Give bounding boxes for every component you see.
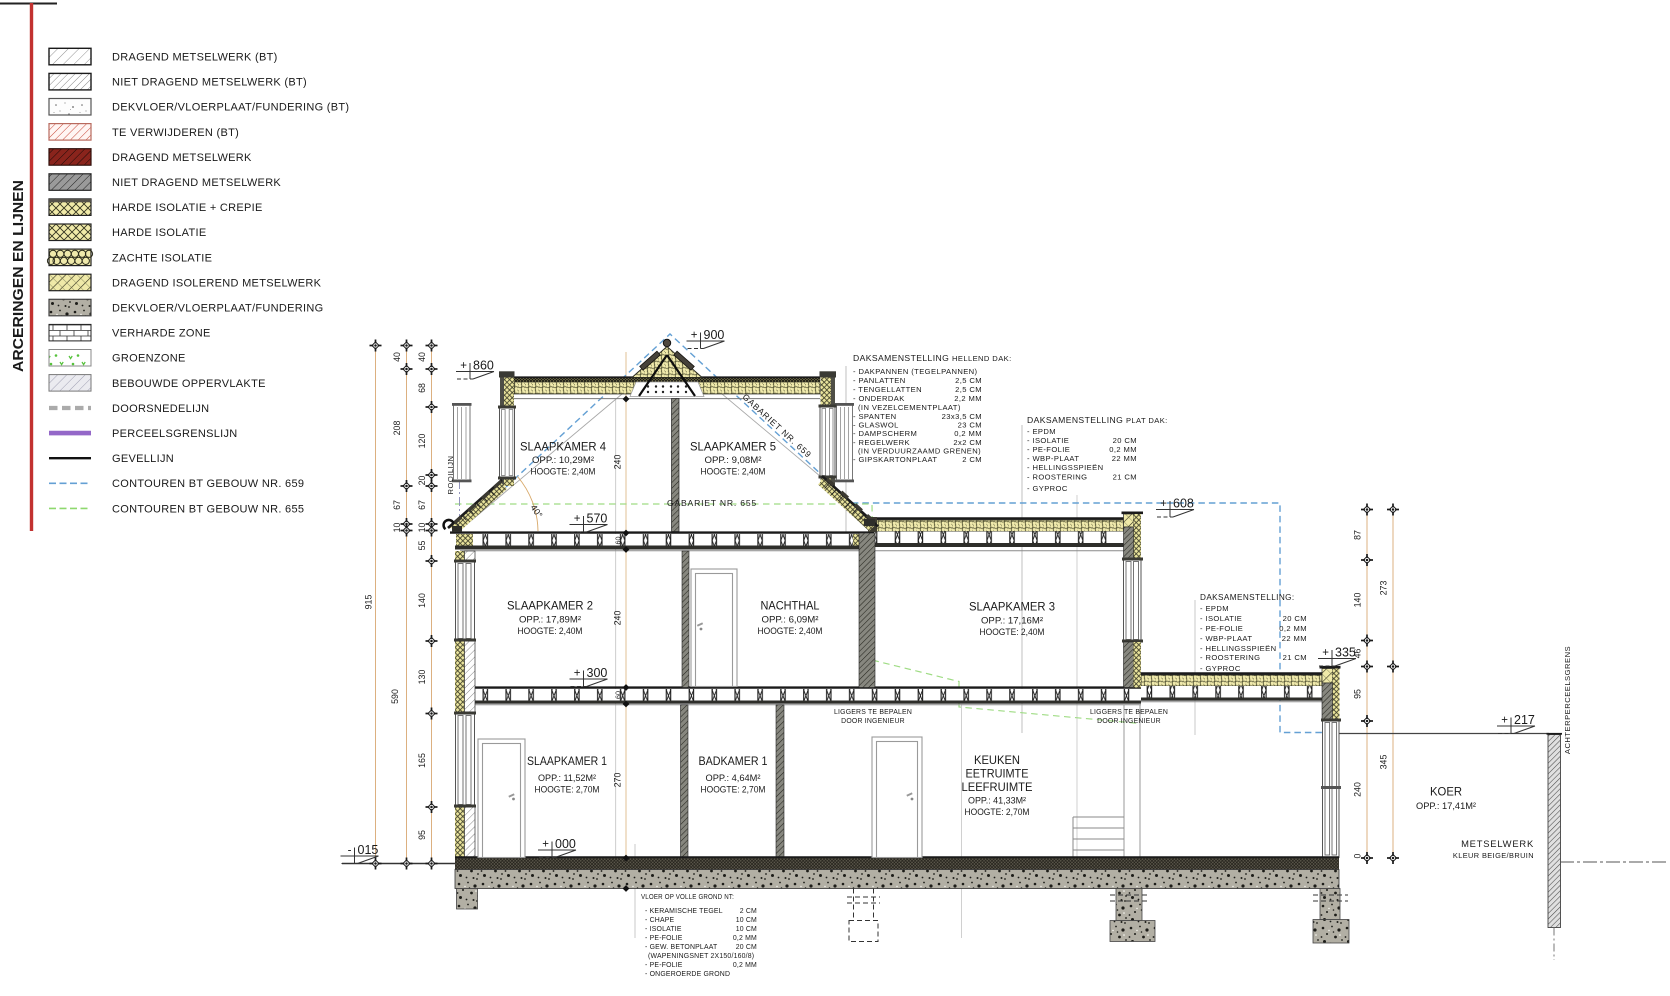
svg-text:GABARIET NR. 655: GABARIET NR. 655 <box>667 498 757 508</box>
svg-text:HOOGTE: 2,40M: HOOGTE: 2,40M <box>531 466 596 477</box>
svg-text:(IN VEZELCEMENTPLAAT): (IN VEZELCEMENTPLAAT) <box>858 403 961 412</box>
svg-text:570: 570 <box>587 512 608 526</box>
svg-text:SLAAPKAMER 4: SLAAPKAMER 4 <box>520 442 607 454</box>
svg-text:67: 67 <box>417 500 427 510</box>
svg-text:40: 40 <box>417 352 427 362</box>
svg-text:- GEW. BETONPLAAT: - GEW. BETONPLAAT <box>645 944 718 951</box>
svg-text:DAKSAMENSTELLING HELLEND DAK:: DAKSAMENSTELLING HELLEND DAK: <box>853 353 1012 363</box>
svg-text:DOOR INGENIEUR: DOOR INGENIEUR <box>841 718 905 725</box>
svg-text:PERCEELSGRENSLIJN: PERCEELSGRENSLIJN <box>112 428 238 440</box>
svg-text:55: 55 <box>417 541 427 551</box>
svg-text:HOOGTE: 2,70M: HOOGTE: 2,70M <box>535 784 600 795</box>
svg-text:130: 130 <box>417 670 427 685</box>
svg-text:21 CM: 21 CM <box>1113 473 1137 482</box>
svg-text:LIGGERS TE BEPALEN: LIGGERS TE BEPALEN <box>834 709 912 716</box>
svg-text:345: 345 <box>1379 755 1389 770</box>
svg-text:HOOGTE: 2,40M: HOOGTE: 2,40M <box>980 626 1045 637</box>
svg-text:DRAGEND ISOLEREND METSELWERK: DRAGEND ISOLEREND METSELWERK <box>112 277 322 289</box>
svg-text:DRAGEND METSELWERK (BT): DRAGEND METSELWERK (BT) <box>112 52 278 64</box>
svg-text:ACHTERPERCEELSGRENS: ACHTERPERCEELSGRENS <box>1563 646 1572 754</box>
svg-text:95: 95 <box>417 830 427 840</box>
svg-text:217: 217 <box>1514 713 1535 727</box>
svg-text:0,2 MM: 0,2 MM <box>1109 445 1137 454</box>
svg-text:OPP.: 41,33M²: OPP.: 41,33M² <box>968 795 1026 806</box>
svg-text:- PE-FOLIE: - PE-FOLIE <box>645 962 683 969</box>
svg-text:OPP.: 9,08M²: OPP.: 9,08M² <box>705 454 762 465</box>
svg-text:OPP.: 10,29M²: OPP.: 10,29M² <box>532 454 594 465</box>
svg-text:+: + <box>542 839 549 851</box>
svg-text:95: 95 <box>1353 689 1363 699</box>
svg-text:SLAAPKAMER 2: SLAAPKAMER 2 <box>507 601 593 613</box>
svg-text:DEKVLOER/VLOERPLAAT/FUNDERING: DEKVLOER/VLOERPLAAT/FUNDERING <box>112 303 323 315</box>
svg-text:240: 240 <box>613 611 623 626</box>
svg-text:165: 165 <box>417 753 427 768</box>
svg-text:- DAMPSCHERM: - DAMPSCHERM <box>853 429 917 438</box>
svg-text:SLAAPKAMER 1: SLAAPKAMER 1 <box>527 756 607 768</box>
svg-text:LIGGERS TE BEPALEN: LIGGERS TE BEPALEN <box>1090 709 1168 716</box>
svg-text:DEKVLOER/VLOERPLAAT/FUNDERING: DEKVLOER/VLOERPLAAT/FUNDERING (BT) <box>112 102 349 114</box>
svg-text:- WBP-PLAAT: - WBP-PLAAT <box>1200 634 1252 643</box>
svg-text:+: + <box>574 513 581 525</box>
svg-text:BEBOUWDE OPPERVLAKTE: BEBOUWDE OPPERVLAKTE <box>112 378 266 390</box>
svg-text:915: 915 <box>364 595 374 610</box>
svg-text:- HELLINGSSPIEËN: - HELLINGSSPIEËN <box>1200 644 1276 653</box>
svg-text:HOOGTE: 2,70M: HOOGTE: 2,70M <box>701 784 766 795</box>
svg-text:KOER: KOER <box>1430 787 1462 799</box>
svg-text:- PE-FOLIE: - PE-FOLIE <box>1200 624 1243 633</box>
svg-text:60: 60 <box>614 691 623 699</box>
svg-text:- PANLATTEN: - PANLATTEN <box>853 376 906 385</box>
svg-text:ARCERINGEN EN LIJNEN: ARCERINGEN EN LIJNEN <box>11 180 27 372</box>
svg-text:(WAPENINGSNET 2X150/160/8): (WAPENINGSNET 2X150/160/8) <box>648 953 754 960</box>
svg-text:TE VERWIJDEREN (BT): TE VERWIJDEREN (BT) <box>112 127 239 139</box>
svg-text:ROOILIJN: ROOILIJN <box>446 455 455 494</box>
svg-text:140: 140 <box>417 593 427 608</box>
svg-text:+: + <box>691 330 698 342</box>
svg-text:- DAKPANNEN (TEGELPANNEN): - DAKPANNEN (TEGELPANNEN) <box>853 367 978 376</box>
svg-text:OPP.: 4,64M²: OPP.: 4,64M² <box>706 772 761 783</box>
svg-text:VLOER OP VOLLE GROND NT:: VLOER OP VOLLE GROND NT: <box>641 892 734 901</box>
svg-text:- PE-FOLIE: - PE-FOLIE <box>1027 445 1070 454</box>
svg-text:ZACHTE ISOLATIE: ZACHTE ISOLATIE <box>112 252 212 264</box>
svg-text:KEUKEN: KEUKEN <box>974 755 1020 767</box>
svg-text:10: 10 <box>417 523 427 533</box>
svg-text:DAKSAMENSTELLING PLAT DAK:: DAKSAMENSTELLING PLAT DAK: <box>1027 415 1168 425</box>
svg-text:OPP.: 11,52M²: OPP.: 11,52M² <box>538 772 596 783</box>
svg-text:0,2 MM: 0,2 MM <box>954 429 982 438</box>
svg-text:DOOR INGENIEUR: DOOR INGENIEUR <box>1097 718 1161 725</box>
svg-text:10: 10 <box>392 523 402 533</box>
svg-text:- EPDM: - EPDM <box>1200 604 1229 613</box>
svg-text:22 MM: 22 MM <box>1112 454 1137 463</box>
svg-text:- EPDM: - EPDM <box>1027 427 1056 436</box>
svg-text:OPP.: 6,09M²: OPP.: 6,09M² <box>762 614 819 625</box>
svg-text:- GIPSKARTONPLAAT: - GIPSKARTONPLAAT <box>853 455 937 464</box>
svg-text:OPP.: 17,41M²: OPP.: 17,41M² <box>1416 800 1476 811</box>
svg-text:2,5 CM: 2,5 CM <box>955 376 982 385</box>
svg-text:HOOGTE: 2,40M: HOOGTE: 2,40M <box>701 466 766 477</box>
svg-text:140: 140 <box>1353 593 1363 608</box>
svg-text:208: 208 <box>392 421 402 436</box>
svg-text:OPP.: 17,16M²: OPP.: 17,16M² <box>981 615 1043 626</box>
svg-text:- GYPROC: - GYPROC <box>1027 484 1068 493</box>
svg-text:0,2 MM: 0,2 MM <box>733 935 757 942</box>
svg-text:240: 240 <box>613 455 623 470</box>
svg-text:VERHARDE ZONE: VERHARDE ZONE <box>112 328 211 340</box>
svg-text:EETRUIMTE: EETRUIMTE <box>966 769 1029 781</box>
svg-text:240: 240 <box>1353 782 1363 797</box>
svg-text:20: 20 <box>417 476 427 486</box>
svg-text:GROENZONE: GROENZONE <box>112 353 186 365</box>
svg-text:- ONGEROERDE GROND: - ONGEROERDE GROND <box>645 971 730 978</box>
svg-text:CONTOUREN BT GEBOUW NR. 659: CONTOUREN BT GEBOUW NR. 659 <box>112 478 304 490</box>
svg-text:273: 273 <box>1379 581 1389 596</box>
svg-text:DAKSAMENSTELLING:: DAKSAMENSTELLING: <box>1200 593 1295 602</box>
svg-text:- GYPROC: - GYPROC <box>1200 664 1241 673</box>
svg-text:900: 900 <box>704 328 725 342</box>
svg-text:20 CM: 20 CM <box>1283 614 1307 623</box>
svg-text:KLEUR BEIGE/BRUIN: KLEUR BEIGE/BRUIN <box>1453 851 1534 860</box>
svg-text:+: + <box>1160 498 1167 510</box>
svg-text:0,2 MM: 0,2 MM <box>1279 624 1307 633</box>
svg-text:21 CM: 21 CM <box>1283 653 1307 662</box>
svg-text:LEEFRUIMTE: LEEFRUIMTE <box>962 782 1033 794</box>
svg-text:300: 300 <box>587 666 608 680</box>
svg-text:22 MM: 22 MM <box>1282 634 1307 643</box>
svg-text:270: 270 <box>613 773 623 788</box>
svg-text:10 CM: 10 CM <box>736 917 757 924</box>
svg-text:- ONDERDAK: - ONDERDAK <box>853 394 905 403</box>
svg-text:20 CM: 20 CM <box>1113 436 1137 445</box>
svg-text:- ISOLATIE: - ISOLATIE <box>1027 436 1069 445</box>
svg-text:BADKAMER 1: BADKAMER 1 <box>699 756 768 768</box>
svg-text:68: 68 <box>417 383 427 393</box>
svg-text:120: 120 <box>417 434 427 449</box>
svg-text:METSELWERK: METSELWERK <box>1461 838 1534 849</box>
svg-text:HOOGTE: 2,70M: HOOGTE: 2,70M <box>965 806 1030 817</box>
svg-text:- PE-FOLIE: - PE-FOLIE <box>645 935 683 942</box>
svg-text:NIET DRAGEND METSELWERK (BT): NIET DRAGEND METSELWERK (BT) <box>112 77 307 89</box>
svg-text:67: 67 <box>392 500 402 510</box>
svg-text:- TENGELLATTEN: - TENGELLATTEN <box>853 385 922 394</box>
svg-text:OPP.: 17,89M²: OPP.: 17,89M² <box>519 614 581 625</box>
svg-text:- WBP-PLAAT: - WBP-PLAAT <box>1027 454 1079 463</box>
svg-text:20 CM: 20 CM <box>736 944 757 951</box>
svg-text:GEVELLIJN: GEVELLIJN <box>112 453 174 465</box>
svg-text:2,2 MM: 2,2 MM <box>954 394 982 403</box>
svg-text:- HELLINGSSPIEËN: - HELLINGSSPIEËN <box>1027 463 1103 472</box>
svg-text:608: 608 <box>1173 497 1194 511</box>
svg-text:87: 87 <box>1353 530 1363 540</box>
svg-text:40: 40 <box>392 352 402 362</box>
svg-text:HARDE ISOLATIE + CREPIE: HARDE ISOLATIE + CREPIE <box>112 202 263 214</box>
svg-text:2 CM: 2 CM <box>962 455 982 464</box>
svg-text:2,5 CM: 2,5 CM <box>955 385 982 394</box>
svg-text:+: + <box>1322 647 1329 659</box>
svg-text:SLAAPKAMER 5: SLAAPKAMER 5 <box>690 442 776 454</box>
svg-text:CONTOUREN BT GEBOUW NR. 655: CONTOUREN BT GEBOUW NR. 655 <box>112 503 304 515</box>
svg-text:DOORSNEDELIJN: DOORSNEDELIJN <box>112 403 209 415</box>
svg-text:- ISOLATIE: - ISOLATIE <box>1200 614 1242 623</box>
svg-text:SLAAPKAMER 3: SLAAPKAMER 3 <box>969 602 1055 614</box>
svg-text:10 CM: 10 CM <box>736 926 757 933</box>
svg-text:- ROOSTERING: - ROOSTERING <box>1027 473 1088 482</box>
svg-text:2 CM: 2 CM <box>740 908 757 915</box>
svg-text:NACHTHAL: NACHTHAL <box>761 601 821 613</box>
svg-text:015: 015 <box>358 843 379 857</box>
svg-text:335: 335 <box>1335 646 1356 660</box>
svg-text:HARDE ISOLATIE: HARDE ISOLATIE <box>112 227 206 239</box>
svg-text:60: 60 <box>614 537 623 545</box>
svg-text:860: 860 <box>473 359 494 373</box>
svg-text:- ROOSTERING: - ROOSTERING <box>1200 653 1261 662</box>
svg-text:590: 590 <box>390 689 400 704</box>
svg-text:000: 000 <box>555 837 576 851</box>
svg-text:DRAGEND METSELWERK: DRAGEND METSELWERK <box>112 152 252 164</box>
svg-text:- KERAMISCHE TEGEL: - KERAMISCHE TEGEL <box>645 908 723 915</box>
svg-text:+: + <box>1501 715 1508 727</box>
svg-text:NIET DRAGEND METSELWERK: NIET DRAGEND METSELWERK <box>112 177 281 189</box>
svg-text:- ISOLATIE: - ISOLATIE <box>645 926 682 933</box>
svg-text:- CHAPE: - CHAPE <box>645 917 675 924</box>
svg-text:-: - <box>348 845 352 857</box>
svg-text:HOOGTE: 2,40M: HOOGTE: 2,40M <box>758 625 823 636</box>
svg-text:HOOGTE: 2,40M: HOOGTE: 2,40M <box>518 625 583 636</box>
svg-text:+: + <box>460 360 467 372</box>
svg-text:0: 0 <box>1353 853 1363 858</box>
svg-text:+: + <box>574 668 581 680</box>
svg-text:0,2 MM: 0,2 MM <box>733 962 757 969</box>
